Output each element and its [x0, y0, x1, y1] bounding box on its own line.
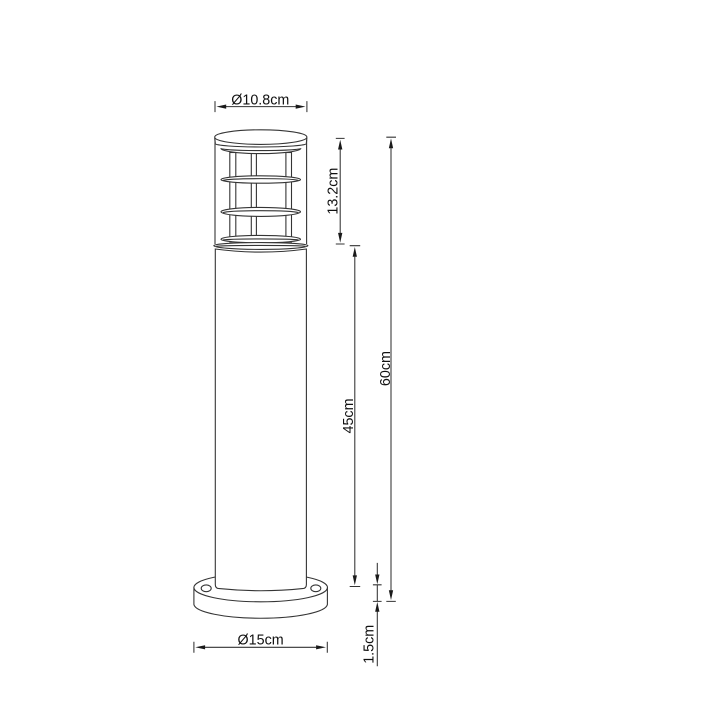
svg-text:Ø15cm: Ø15cm — [238, 632, 284, 648]
svg-text:13.2cm: 13.2cm — [326, 168, 342, 215]
svg-text:45cm: 45cm — [341, 399, 357, 434]
svg-text:Ø10.8cm: Ø10.8cm — [231, 92, 289, 108]
svg-text:60cm: 60cm — [378, 351, 394, 386]
svg-text:1.5cm: 1.5cm — [362, 625, 378, 664]
